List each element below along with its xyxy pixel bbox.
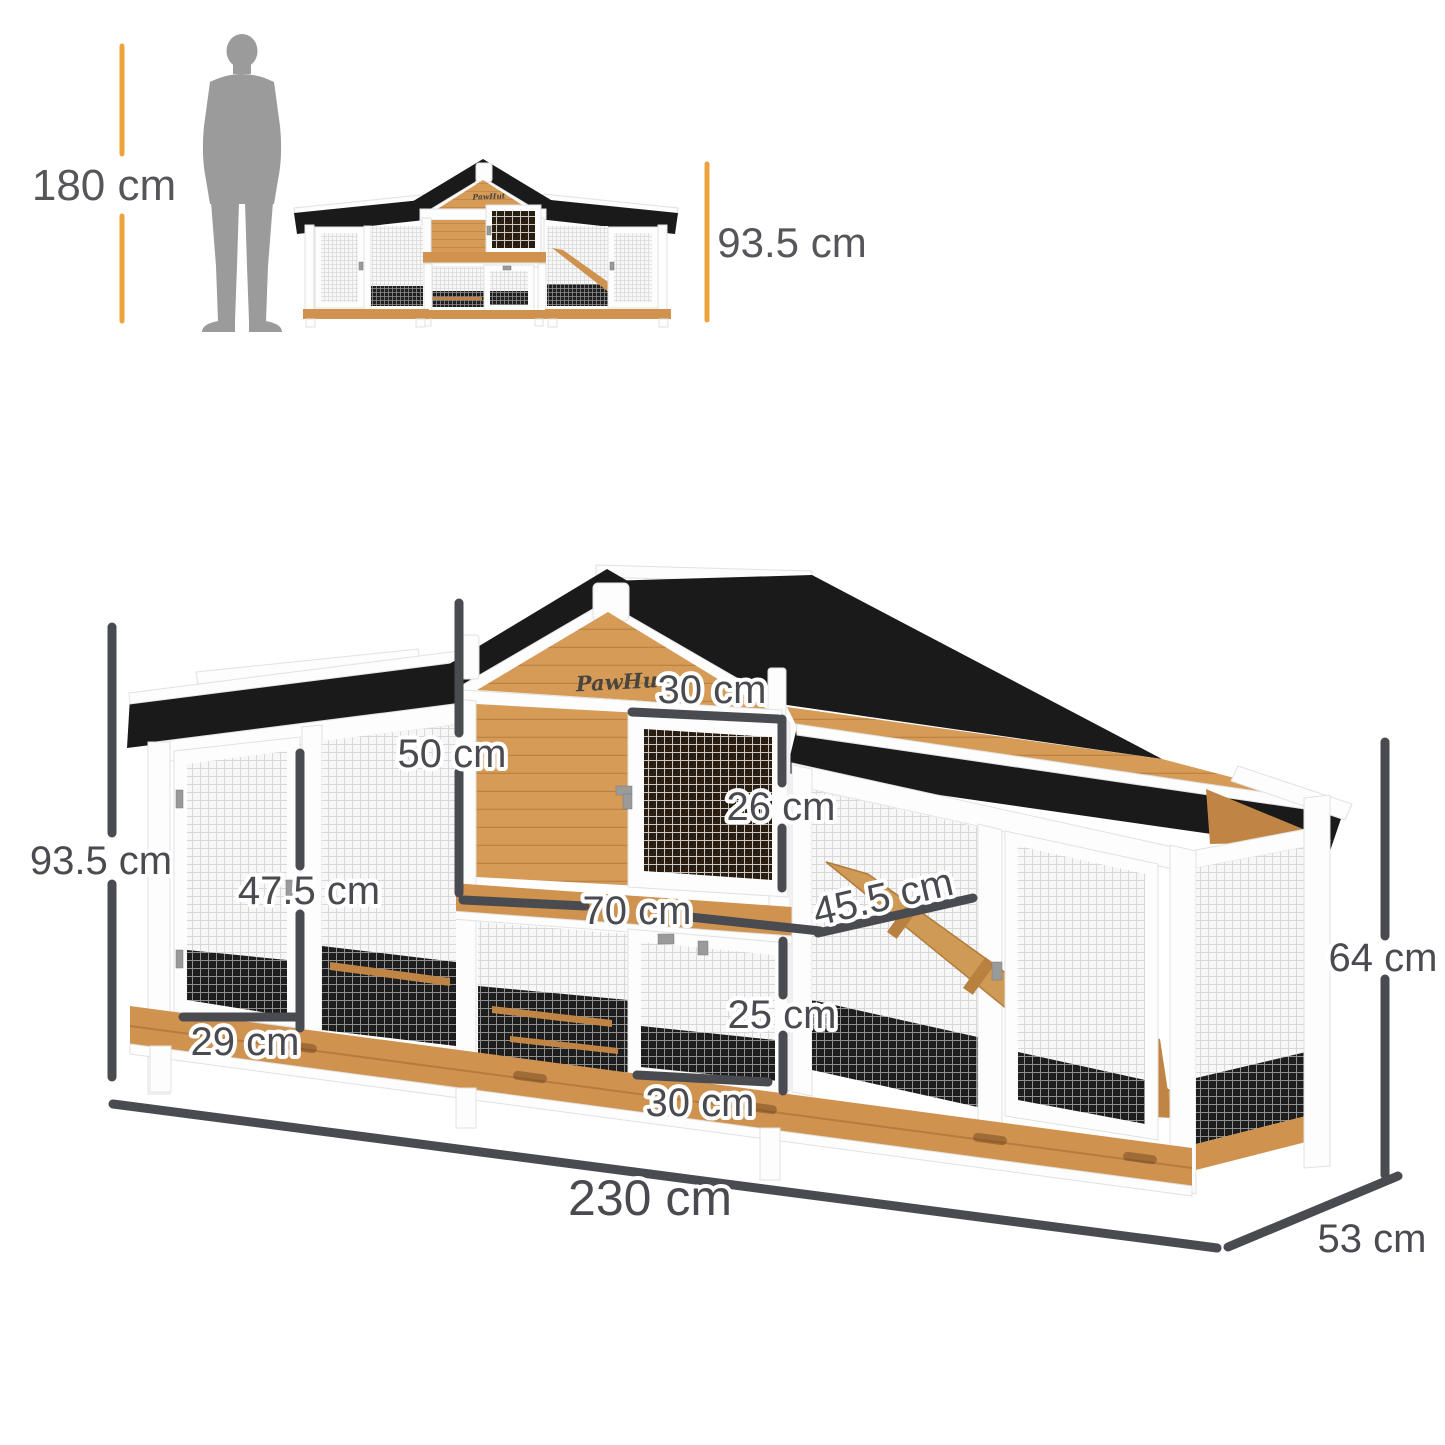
dim-label-upper-door-width: 30 cm [658, 668, 767, 712]
person-height-label: 180 cm [32, 161, 176, 210]
dim-label-upper-door-height: 26 cm [727, 785, 836, 829]
product-dimension-diagram: 180 cm [0, 0, 1445, 1445]
dim-label-upper-house-height: 50 cm [398, 732, 507, 776]
dim-label-run-height: 64 cm [1329, 936, 1438, 980]
dim-label-lower-door-height: 25 cm [728, 993, 837, 1037]
small-hutch-illustration: PawHut [294, 159, 678, 327]
person-silhouette [202, 34, 282, 332]
hutch-height-label: 93.5 cm [717, 219, 866, 266]
diagram-svg: 180 cm [0, 0, 1445, 1445]
dim-label-total-height: 93.5 cm [30, 839, 172, 883]
dim-label-total-width: 230 cm [568, 1170, 732, 1226]
small-brand-logo: PawHut [471, 191, 506, 201]
dim-label-upper-house-width: 70 cm [583, 889, 692, 933]
dim-label-total-depth: 53 cm [1318, 1217, 1427, 1261]
dim-label-side-door-width: 29 cm [191, 1020, 300, 1064]
dim-label-side-door-height: 47.5 cm [238, 869, 380, 913]
scale-reference-row: 180 cm [32, 34, 867, 332]
dim-label-lower-door-width: 30 cm [646, 1081, 755, 1125]
dim-line-upper-house-width [463, 900, 585, 906]
brand-logo: PawHut [574, 667, 668, 697]
